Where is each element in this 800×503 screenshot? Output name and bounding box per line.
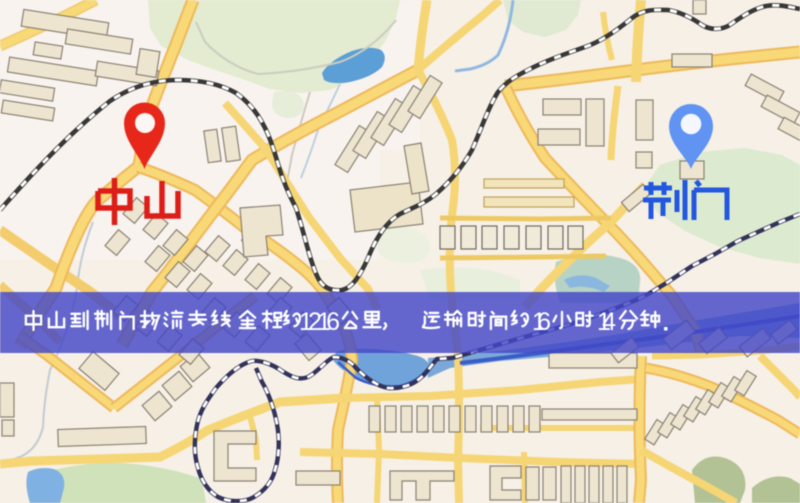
svg-text:14: 14 <box>597 308 616 336</box>
svg-text:16: 16 <box>532 308 551 336</box>
svg-text:1216: 1216 <box>299 308 340 336</box>
